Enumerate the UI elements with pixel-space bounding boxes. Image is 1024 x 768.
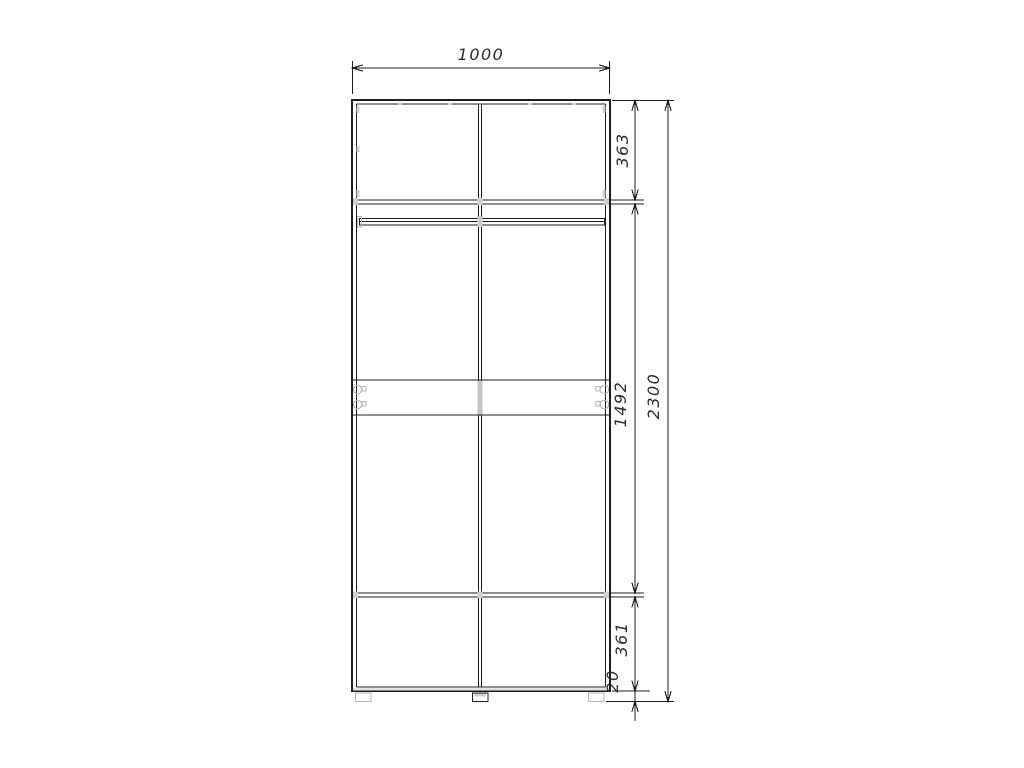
dowel-mark-top-4 — [572, 103, 576, 105]
feet — [356, 693, 605, 702]
camlock-tab-right-upper — [596, 387, 600, 392]
wardrobe-technical-drawing: 1000 363 1492 — [0, 0, 1024, 768]
joint-left-bottom-shelf — [353, 592, 358, 599]
hinge-mark-left-mid — [357, 146, 360, 152]
camlock-tab-left-lower — [362, 402, 366, 407]
dimension-label-section-middle: 1492 — [611, 381, 630, 428]
bottom-panel-fill — [353, 688, 609, 691]
joint-right-top-shelf — [604, 198, 609, 205]
dimension-section-top: 363 — [613, 101, 638, 201]
dimension-section-middle: 1492 — [611, 204, 638, 593]
camlock-fitting-right-lower — [600, 400, 608, 408]
joint-center-bottom-shelf — [478, 592, 483, 599]
dimension-plinth: 20 — [603, 669, 638, 721]
dimension-label-section-bottom: 361 — [612, 621, 631, 656]
camlock-fitting-left-upper — [353, 385, 361, 393]
hinge-mark-right-shelf — [603, 190, 606, 197]
hinge-mark-left-top — [357, 106, 360, 113]
hinge-mark-right-top — [603, 106, 606, 113]
dowel-mark-top-2 — [448, 103, 452, 105]
joint-right-bottom-shelf — [604, 592, 609, 599]
dimension-label-plinth: 20 — [603, 669, 622, 692]
foot-left — [356, 693, 372, 702]
hinge-mark-left-shelf — [357, 190, 360, 197]
connector-band-center-post — [478, 381, 483, 415]
dimension-label-width-total: 1000 — [458, 45, 505, 64]
connector-band — [352, 380, 610, 415]
dimension-label-height-total: 2300 — [644, 373, 663, 420]
camlock-fitting-left-lower — [353, 400, 361, 408]
dowel-mark-top-3 — [528, 103, 532, 105]
joint-left-top-shelf — [353, 198, 358, 205]
joint-center-top-shelf — [478, 198, 483, 205]
dimension-height-total: 2300 — [644, 101, 671, 702]
camlock-fitting-right-upper — [600, 385, 608, 393]
dimension-label-section-top: 363 — [613, 132, 632, 167]
foot-right — [589, 693, 605, 702]
drawing-canvas: 1000 363 1492 — [0, 0, 1024, 768]
wardrobe-body — [352, 100, 610, 702]
dowel-mark-top-1 — [398, 103, 402, 105]
dimension-width-total: 1000 — [353, 45, 610, 94]
camlock-tab-left-upper — [362, 387, 366, 392]
joint-center-rod — [478, 217, 483, 228]
camlock-tab-right-lower — [596, 402, 600, 407]
foot-center-shade — [475, 694, 487, 697]
